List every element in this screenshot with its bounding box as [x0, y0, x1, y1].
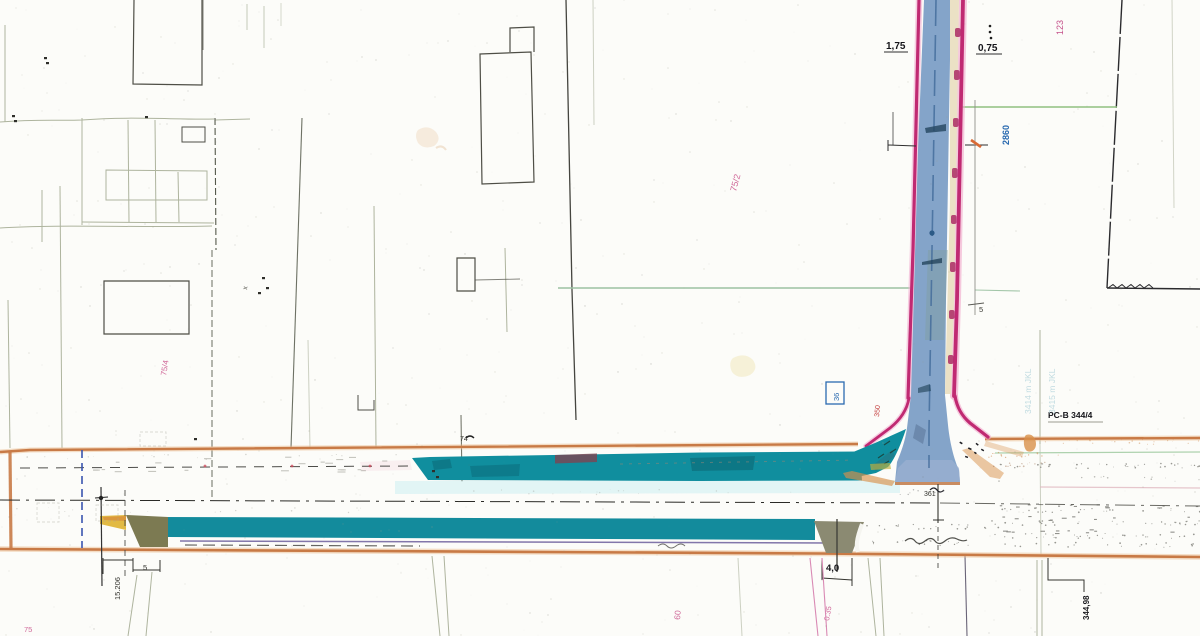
svg-text:0,75: 0,75	[978, 43, 998, 54]
svg-text:3415 m JKL: 3415 m JKL	[1047, 368, 1057, 414]
svg-text:344,98: 344,98	[1082, 595, 1091, 620]
svg-text:75: 75	[24, 625, 32, 634]
svg-text:5: 5	[979, 305, 983, 314]
svg-text:4,0: 4,0	[826, 563, 839, 574]
svg-text:361: 361	[924, 491, 936, 498]
svg-text:5: 5	[143, 563, 147, 572]
svg-text:15.206: 15.206	[113, 577, 122, 600]
svg-text:36: 36	[832, 393, 841, 401]
svg-text:3414 m JKL: 3414 m JKL	[1023, 368, 1033, 414]
svg-text:2860: 2860	[1001, 125, 1011, 145]
svg-text:350: 350	[874, 405, 882, 417]
svg-text:123: 123	[1055, 20, 1065, 35]
svg-text:60: 60	[672, 610, 683, 621]
svg-text:1,75: 1,75	[886, 41, 906, 52]
